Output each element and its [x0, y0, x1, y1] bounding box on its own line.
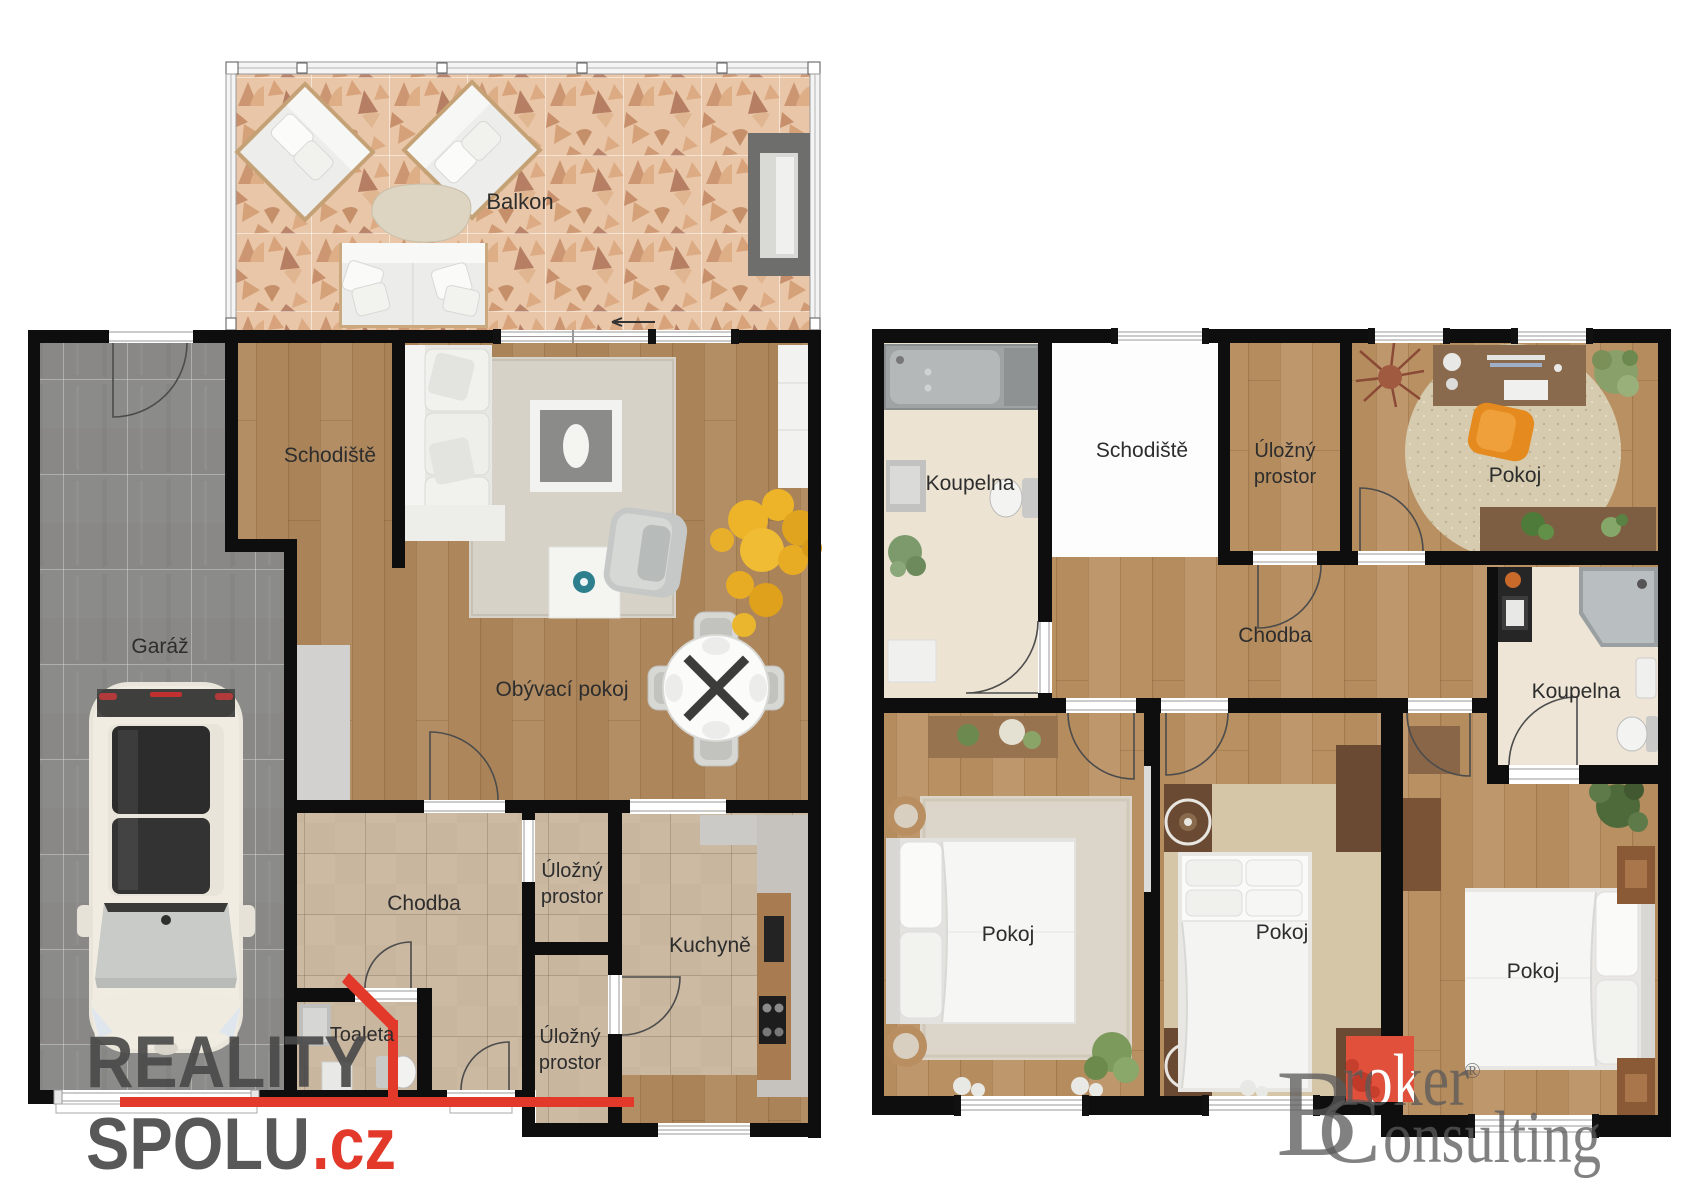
svg-text:onsulting: onsulting — [1383, 1097, 1601, 1179]
svg-text:Úložný: Úložný — [541, 859, 602, 882]
svg-text:®: ® — [1464, 1058, 1481, 1083]
svg-text:Koupelna: Koupelna — [926, 472, 1015, 495]
svg-text:Koupelna: Koupelna — [1532, 680, 1621, 703]
svg-text:Pokoj: Pokoj — [1507, 960, 1560, 983]
svg-text:prostor: prostor — [539, 1052, 602, 1074]
svg-text:Schodiště: Schodiště — [284, 444, 376, 467]
svg-text:C: C — [1318, 1079, 1381, 1183]
svg-text:Chodba: Chodba — [1238, 624, 1312, 647]
svg-text:Garáž: Garáž — [131, 635, 188, 658]
svg-text:Pokoj: Pokoj — [1489, 464, 1542, 487]
svg-text:Schodiště: Schodiště — [1096, 439, 1188, 462]
svg-text:Úložný: Úložný — [539, 1025, 600, 1048]
svg-text:REALITY: REALITY — [86, 1022, 368, 1103]
svg-text:Kuchyně: Kuchyně — [669, 934, 751, 957]
svg-text:Balkon: Balkon — [486, 189, 553, 214]
svg-text:SPOLU: SPOLU — [86, 1104, 310, 1185]
svg-text:prostor: prostor — [541, 886, 604, 908]
svg-text:.cz: .cz — [312, 1104, 396, 1185]
svg-text:Pokoj: Pokoj — [982, 923, 1035, 946]
svg-text:Pokoj: Pokoj — [1256, 921, 1309, 944]
svg-text:prostor: prostor — [1254, 466, 1317, 488]
svg-text:Obývací pokoj: Obývací pokoj — [495, 678, 628, 701]
svg-text:Úložný: Úložný — [1254, 439, 1315, 462]
svg-text:Chodba: Chodba — [387, 892, 461, 915]
